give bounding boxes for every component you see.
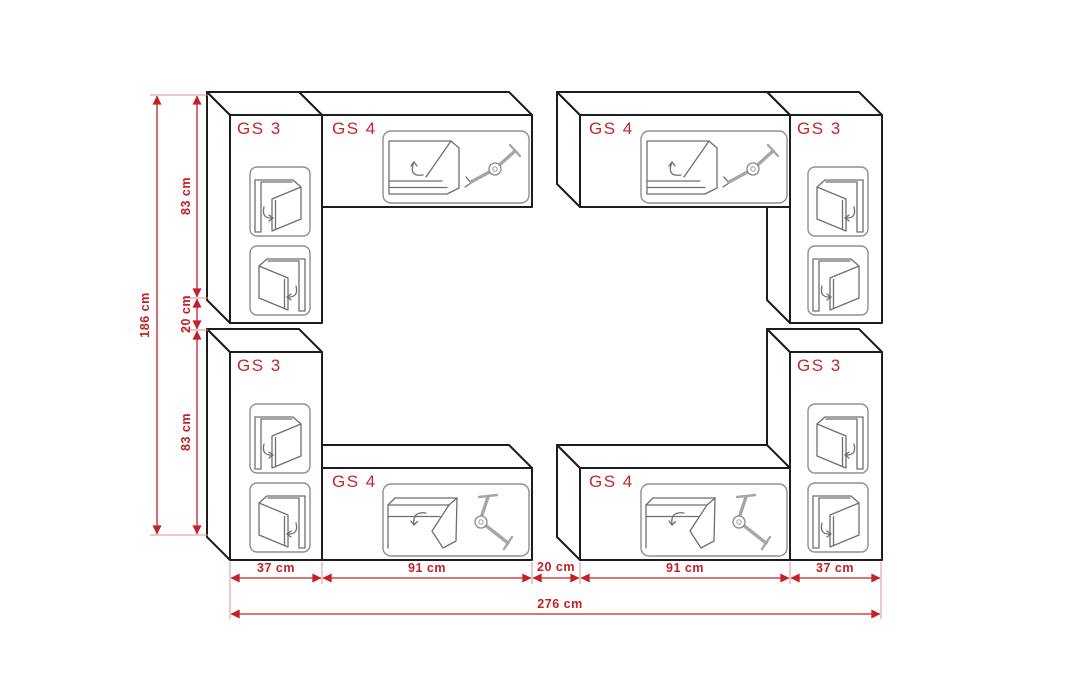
top-face [557,445,790,468]
dimension-label-83-bottom: 83 cm [179,413,193,451]
diagram-canvas: GS 3 GS 4 GS 4 GS 3 GS 3 GS 4 [0,0,1090,697]
dimension-label-91-left: 91 cm [408,561,446,575]
dimension-label-20-bottom: 20 cm [537,560,575,574]
cabinet-label: GS 4 [332,119,377,138]
flap-door-icon [383,484,529,556]
cabinet-label: GS 3 [237,356,282,375]
dimension-label-20-left: 20 cm [179,295,193,333]
door-icon [250,404,310,473]
wall-unit-dimension-diagram: GS 3 GS 4 GS 4 GS 3 GS 3 GS 4 [0,0,1090,697]
door-icon [250,246,310,315]
flap-door-icon [641,131,787,203]
cabinet-label: GS 4 [589,472,634,491]
side-face [207,92,230,323]
side-face [207,329,230,560]
dimension-label-83-top: 83 cm [179,177,193,215]
cabinet-label: GS 4 [332,472,377,491]
left-dimensions: 83 cm 20 cm 83 cm 186 cm [138,95,208,535]
bottom-dimensions: 37 cm 91 cm 20 cm 91 cm 37 cm 276 cm [230,560,881,619]
dimension-label-37-right: 37 cm [816,561,854,575]
cabinet-label: GS 3 [237,119,282,138]
cabinet-label: GS 4 [589,119,634,138]
door-icon [808,483,868,552]
flap-door-icon [383,131,529,203]
flap-door-icon [641,484,787,556]
door-icon [808,246,868,315]
dimension-label-total-height: 186 cm [138,292,152,337]
top-face [557,92,790,115]
door-icon [808,404,868,473]
door-icon [250,483,310,552]
dimension-label-91-right: 91 cm [666,561,704,575]
dimension-label-37-left: 37 cm [257,561,295,575]
top-face [299,92,532,115]
dimension-label-total-width: 276 cm [537,597,582,611]
cabinet-label: GS 3 [797,119,842,138]
cabinet-label: GS 3 [797,356,842,375]
top-face [299,445,532,468]
door-icon [250,167,310,236]
door-icon [808,167,868,236]
